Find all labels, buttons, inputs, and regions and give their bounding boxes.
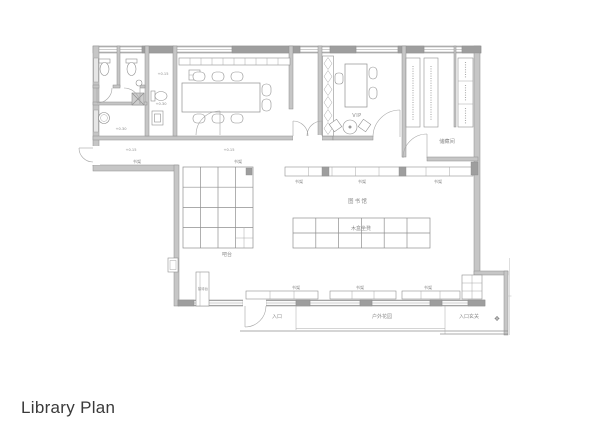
storage-west-wall	[402, 46, 406, 157]
door-arc	[403, 134, 427, 158]
bookshelf-label: 书架	[358, 178, 366, 185]
wc-reading-south-wall	[93, 136, 293, 140]
entrance-opening	[243, 299, 266, 307]
storage-south-wall	[427, 157, 478, 161]
corner-sink-fixture	[136, 80, 142, 86]
foyer-label: 入口玄关	[459, 313, 479, 320]
round-table	[329, 119, 371, 134]
bookshelf-label: 书架	[133, 158, 141, 165]
bookshelf-band-bottom	[246, 291, 460, 299]
storage-shelf	[458, 58, 473, 127]
library-floor-plan: +0.15 +0.30 +0.30	[0, 0, 610, 431]
garden-label: 户外花园	[372, 313, 392, 320]
wall-cabinet	[168, 258, 178, 272]
bookshelf-label: 书架	[424, 284, 432, 291]
box-seats-label: 木盒坐凳	[351, 225, 371, 232]
foyer-cabinet	[462, 275, 482, 299]
compass-ornament-icon: ❖	[494, 315, 500, 323]
hall-label: 图书馆	[348, 197, 368, 205]
storage-label: 储藏间	[439, 137, 455, 145]
bookshelf-band-top	[285, 162, 478, 176]
level-marker: +0.15	[223, 148, 234, 152]
vip-room: VIP	[323, 56, 401, 137]
vip-west-wall	[318, 46, 322, 140]
entrance-door-arc	[245, 306, 266, 327]
reception-label: 接待台	[198, 286, 209, 291]
bar-label: 吧台	[222, 251, 232, 258]
level-marker: +0.15	[125, 148, 136, 152]
round-sink-fixture	[99, 113, 110, 124]
vip-south-wall	[333, 136, 373, 140]
bar-counter	[183, 167, 253, 248]
passage-door-opening	[92, 146, 100, 165]
toilet-fixture	[126, 59, 137, 76]
main-hall: 书架 书架 书架 图书馆 木盒坐凳 书架 书架 书架	[168, 162, 478, 306]
shaft-box	[132, 93, 144, 105]
plan-title: Library Plan	[21, 398, 115, 418]
bookshelf-label: 书架	[292, 284, 300, 291]
reception-desk: 接待台	[196, 272, 209, 306]
level-marker: +0.30	[115, 127, 127, 131]
vestibule-west-wall	[289, 46, 293, 109]
reading-table	[182, 83, 260, 112]
bookshelf-label: 书架	[234, 158, 242, 165]
level-marker: +0.30	[155, 102, 167, 106]
vip-desk	[345, 64, 367, 107]
entrance-label: 入口	[272, 314, 282, 320]
reading-west-wall	[173, 46, 177, 136]
water-heater	[152, 111, 163, 125]
passage-south-wall	[93, 165, 178, 171]
toilet-fixture	[151, 91, 167, 101]
door-arc	[373, 110, 400, 137]
page: +0.15 +0.30 +0.30	[0, 0, 610, 431]
vestibule-double-door	[293, 121, 322, 141]
wc-block: +0.15 +0.30 +0.30	[97, 59, 169, 131]
box-seating-grid: 木盒坐凳	[293, 218, 430, 248]
foyer-north-wall	[474, 271, 508, 275]
storage-room: 储藏间	[403, 58, 473, 158]
hall-west-wall	[174, 165, 179, 306]
passage: +0.15 +0.15 书架 书架	[79, 148, 242, 165]
bookshelf-label: 书架	[295, 178, 303, 185]
foyer-east-wall	[504, 271, 508, 335]
reading-room	[179, 58, 290, 135]
toilet-fixture	[99, 59, 110, 76]
vip-label: VIP	[352, 113, 361, 119]
bookshelf-label: 书架	[356, 284, 364, 291]
door-arc	[79, 148, 93, 162]
bookshelf-label: 书架	[434, 178, 442, 185]
window-counter	[179, 58, 290, 65]
level-marker: +0.15	[157, 72, 168, 76]
